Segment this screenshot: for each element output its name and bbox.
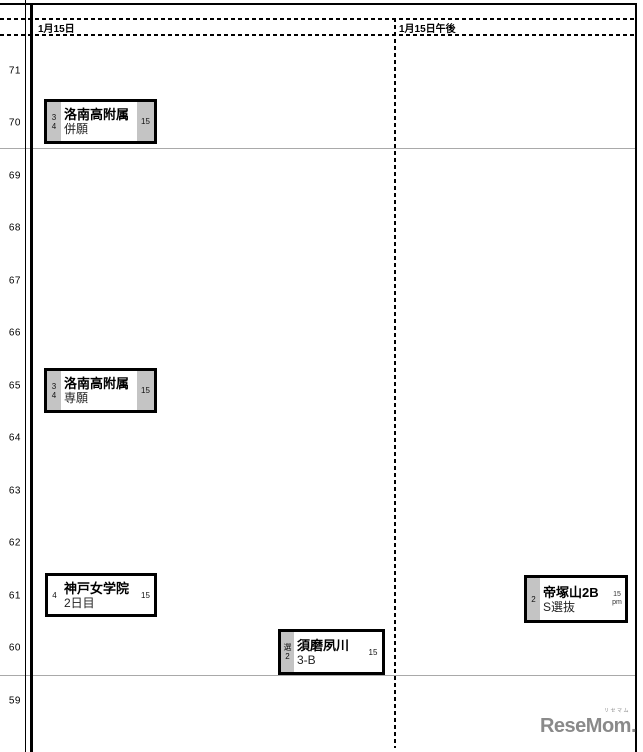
axis-label: 64 bbox=[0, 433, 21, 444]
right-border-line bbox=[635, 3, 637, 752]
school-name: 神戸女学院 bbox=[64, 581, 137, 596]
school-box-rakunan-heigan: 3 4 洛南高附属 併願 15 bbox=[44, 99, 157, 144]
box-left-labels: 選 2 bbox=[281, 632, 294, 672]
box-right-label: 15 bbox=[141, 591, 150, 600]
box-right-labels: 15 pm bbox=[609, 578, 625, 620]
box-left-label: 2 bbox=[285, 652, 289, 661]
axis-label: 70 bbox=[0, 118, 21, 129]
box-left-label: 4 bbox=[52, 391, 56, 400]
axis-label: 66 bbox=[0, 328, 21, 339]
band-separator-69-5 bbox=[0, 148, 637, 149]
box-right-label: 15 bbox=[369, 648, 378, 657]
column-divider-dashed-line bbox=[394, 18, 396, 748]
school-box-suma-shukugawa: 選 2 須磨夙川 3-B 15 bbox=[278, 629, 385, 675]
box-main: 帝塚山2B S選抜 bbox=[540, 578, 609, 620]
school-name: 帝塚山2B bbox=[543, 585, 609, 600]
box-right-labels: 15 bbox=[137, 102, 154, 141]
band-separator-59-5 bbox=[0, 675, 637, 676]
school-course: 併願 bbox=[64, 122, 137, 136]
box-main: 須磨夙川 3-B bbox=[294, 632, 364, 672]
box-left-labels: 3 4 bbox=[47, 102, 61, 141]
axis-label: 63 bbox=[0, 486, 21, 497]
axis-label: 62 bbox=[0, 538, 21, 549]
axis-label: 67 bbox=[0, 276, 21, 287]
school-name: 洛南高附属 bbox=[64, 376, 137, 391]
box-right-label: 15 bbox=[141, 386, 150, 395]
resemom-logo: リセマム ReseMom. bbox=[526, 708, 636, 738]
axis-label: 68 bbox=[0, 223, 21, 234]
box-left-labels: 3 4 bbox=[47, 371, 61, 410]
box-right-label: 15 bbox=[141, 117, 150, 126]
school-course: 3-B bbox=[297, 653, 364, 667]
box-right-label: pm bbox=[612, 599, 622, 607]
school-name: 洛南高附属 bbox=[64, 107, 137, 122]
exam-schedule-chart: 1月15日 1月15日午後 71 70 69 68 67 66 65 64 63… bbox=[0, 0, 643, 752]
school-box-rakunan-sengan: 3 4 洛南高附属 専願 15 bbox=[44, 368, 157, 413]
box-right-labels: 15 bbox=[364, 632, 382, 672]
axis-label: 71 bbox=[0, 66, 21, 77]
column-header-jan15-pm: 1月15日午後 bbox=[399, 20, 456, 35]
box-right-labels: 15 bbox=[137, 371, 154, 410]
box-left-label: 4 bbox=[52, 591, 56, 600]
box-right-label: 15 bbox=[613, 591, 621, 599]
axis-label: 61 bbox=[0, 591, 21, 602]
box-left-label: 4 bbox=[52, 122, 56, 131]
axis-thick-vertical-line bbox=[30, 3, 33, 752]
box-left-label: 選 bbox=[284, 643, 292, 652]
box-main: 神戸女学院 2日目 bbox=[61, 576, 137, 614]
school-name: 須磨夙川 bbox=[297, 638, 364, 653]
school-course: 2日目 bbox=[64, 596, 137, 610]
axis-label: 60 bbox=[0, 643, 21, 654]
axis-label: 59 bbox=[0, 696, 21, 707]
school-course: 専願 bbox=[64, 391, 137, 405]
box-left-labels: 2 bbox=[527, 578, 540, 620]
school-course: S選抜 bbox=[543, 600, 609, 614]
school-box-tezukayama: 2 帝塚山2B S選抜 15 pm bbox=[524, 575, 628, 623]
box-right-labels: 15 bbox=[137, 576, 154, 614]
box-left-label: 2 bbox=[531, 595, 535, 604]
axis-label: 69 bbox=[0, 171, 21, 182]
header-top-dashed-line bbox=[0, 18, 637, 20]
axis-label: 65 bbox=[0, 381, 21, 392]
resemom-logo-text: ReseMom. bbox=[526, 714, 636, 738]
box-main: 洛南高附属 併願 bbox=[61, 102, 137, 141]
top-border-line bbox=[0, 3, 637, 5]
column-header-jan15: 1月15日 bbox=[38, 20, 75, 35]
box-main: 洛南高附属 専願 bbox=[61, 371, 137, 410]
header-bottom-dashed-line bbox=[0, 34, 637, 36]
box-left-labels: 4 bbox=[48, 576, 61, 614]
box-left-label: 3 bbox=[52, 113, 56, 122]
axis-thin-vertical-line bbox=[25, 0, 26, 752]
school-box-kobe-jogakuin: 4 神戸女学院 2日目 15 bbox=[45, 573, 157, 617]
box-left-label: 3 bbox=[52, 382, 56, 391]
